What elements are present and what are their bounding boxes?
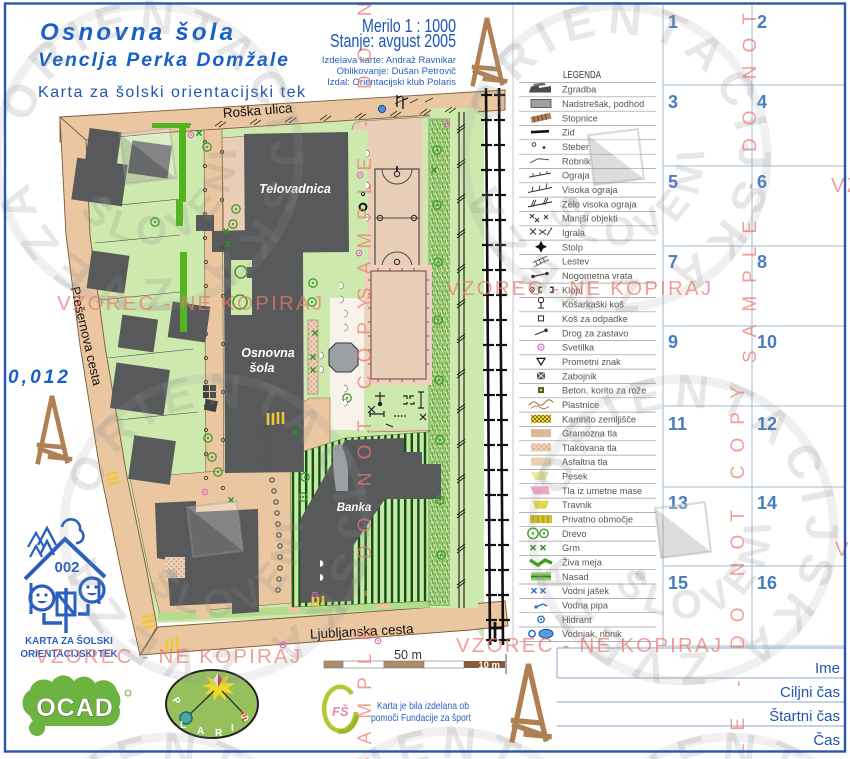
svg-text:Ograja: Ograja: [562, 171, 590, 181]
svg-text:VZOREC - NE KOPIRAJ: VZOREC - NE KOPIRAJ: [456, 634, 723, 657]
svg-text:I: I: [231, 723, 234, 734]
svg-text:Čas: Čas: [813, 732, 840, 749]
svg-text:Drevo: Drevo: [562, 529, 587, 539]
svg-text:SAMPLE - DO NOT COPY: SAMPLE - DO NOT COPY: [355, 0, 376, 300]
svg-text:Zgradba: Zgradba: [562, 85, 597, 95]
svg-text:14: 14: [757, 493, 777, 513]
svg-text:Osnovna: Osnovna: [241, 346, 295, 360]
svg-text:Drog za zastavo: Drog za zastavo: [562, 328, 628, 338]
svg-text:Ime: Ime: [815, 660, 840, 677]
svg-text:Štartni čas: Štartni čas: [769, 708, 840, 725]
svg-text:VZOREC - NE KOPIRAJ: VZOREC - NE KOPIRAJ: [35, 645, 302, 668]
svg-text:SAMPLE - DO NOT COPY: SAMPLE - DO NOT COPY: [740, 0, 761, 363]
svg-text:Steber: Steber: [562, 142, 589, 152]
svg-text:Zid: Zid: [562, 128, 575, 138]
svg-text:3: 3: [668, 92, 678, 112]
svg-text:50 m: 50 m: [394, 648, 422, 662]
svg-text:VZ: VZ: [835, 538, 850, 561]
svg-text:FŠ: FŠ: [332, 704, 349, 719]
svg-text:LEGENDA: LEGENDA: [563, 70, 601, 81]
svg-text:Svetilka: Svetilka: [562, 343, 595, 353]
svg-text:11: 11: [668, 414, 687, 434]
svg-text:Privatno območje: Privatno območje: [562, 515, 633, 525]
svg-text:Nadstrešak, podhod: Nadstrešak, podhod: [562, 99, 644, 109]
svg-text:Stanje: avgust 2005: Stanje: avgust 2005: [330, 31, 456, 51]
svg-text:Izdelava karte: Andraž Ravnika: Izdelava karte: Andraž Ravnikar: [322, 55, 456, 66]
svg-text:SAMPLE - DO NOT COPY: SAMPLE - DO NOT COPY: [728, 373, 749, 759]
svg-text:Zabojnik: Zabojnik: [562, 371, 597, 381]
svg-text:10 m: 10 m: [478, 660, 500, 671]
svg-text:VZOREC - NE KOPIRAJ: VZOREC - NE KOPIRAJ: [446, 277, 713, 300]
svg-text:Stopnice: Stopnice: [562, 113, 598, 123]
svg-text:Travnik: Travnik: [562, 500, 592, 510]
svg-text:Karta je bila izdelana ob: Karta je bila izdelana ob: [377, 700, 469, 712]
svg-text:Ciljni čas: Ciljni čas: [780, 684, 840, 701]
svg-text:SAMPLE - DO NOT COPY: SAMPLE - DO NOT COPY: [355, 283, 376, 759]
svg-text:0,012: 0,012: [8, 367, 68, 388]
svg-text:Prometni znak: Prometni znak: [562, 357, 621, 367]
svg-text:OCAD: OCAD: [36, 694, 114, 722]
svg-text:VZ: VZ: [831, 174, 850, 197]
svg-text:Robnik: Robnik: [562, 156, 591, 166]
svg-text:9: 9: [668, 332, 678, 352]
svg-text:Izdal: Orientacijski klub Pola: Izdal: Orientacijski klub Polaris: [327, 77, 456, 88]
svg-text:VZOREC - NE KOPIRAJ: VZOREC - NE KOPIRAJ: [57, 292, 324, 315]
